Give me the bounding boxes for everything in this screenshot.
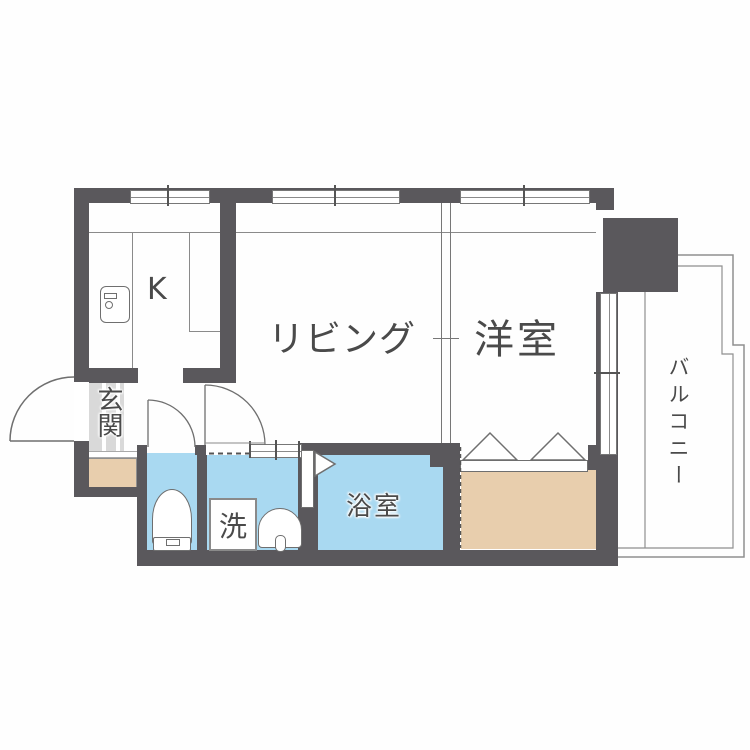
closet-folding-door-triangle xyxy=(463,433,517,460)
balcony-label: バルコニー xyxy=(663,356,693,491)
floor-plan: 洗 K リビング 洋室 浴室 玄関 バルコニー xyxy=(0,0,750,750)
toilet-door-arc xyxy=(148,400,195,447)
closet-folding-door-triangle xyxy=(531,433,585,460)
bath-folding-door-triangle xyxy=(315,452,335,476)
washing-machine: 洗 xyxy=(209,498,257,551)
western-room-label: 洋室 xyxy=(474,307,560,365)
washbasin-icon xyxy=(258,508,302,548)
refrigerator-icon xyxy=(100,286,130,323)
washing-machine-label: 洗 xyxy=(219,505,247,545)
kitchen-label: K xyxy=(147,272,167,307)
washroom-door-arc xyxy=(205,385,265,445)
entrance-label: 玄関 xyxy=(90,386,127,438)
entrance-door-arc xyxy=(10,377,74,441)
toilet-tank-icon xyxy=(153,537,191,551)
living-label: リビング xyxy=(268,310,416,362)
plan-linework xyxy=(0,0,750,750)
bathroom-label: 浴室 xyxy=(346,486,402,523)
